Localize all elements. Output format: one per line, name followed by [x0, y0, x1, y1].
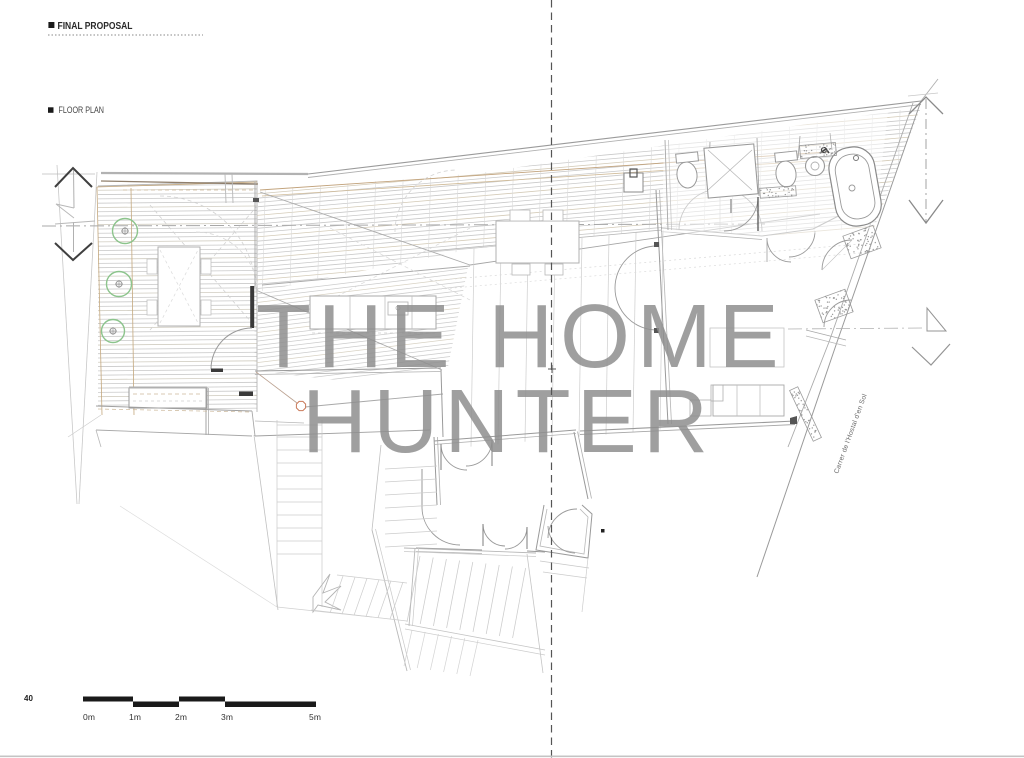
- svg-text:FINAL PROPOSAL: FINAL PROPOSAL: [58, 20, 133, 32]
- svg-text:1m: 1m: [129, 712, 141, 722]
- svg-text:FLOOR PLAN: FLOOR PLAN: [59, 105, 105, 115]
- svg-text:2m: 2m: [175, 712, 187, 722]
- svg-text:40: 40: [24, 694, 33, 703]
- svg-text:5m: 5m: [309, 712, 321, 722]
- svg-text:3m: 3m: [221, 712, 233, 722]
- svg-text:0m: 0m: [83, 712, 95, 722]
- svg-text:HUNTER: HUNTER: [302, 372, 714, 472]
